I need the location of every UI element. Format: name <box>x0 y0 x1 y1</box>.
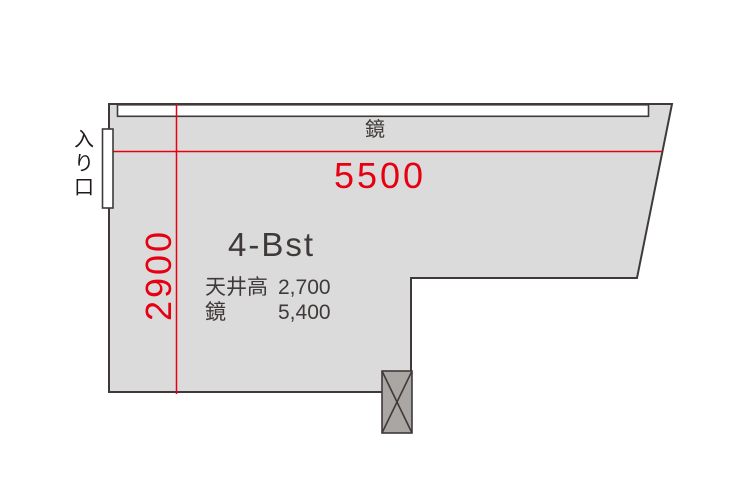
floorplan-canvas: 鏡 5500 2900 4-Bst 天井高 2,700 鏡 5,400 入り口 <box>0 0 750 498</box>
spec-label: 天井高 <box>205 275 278 300</box>
entrance-door <box>103 129 114 208</box>
spec-label: 鏡 <box>205 300 278 325</box>
room-specs: 天井高 2,700 鏡 5,400 <box>205 275 331 325</box>
depth-dimension-value: 2900 <box>141 210 177 340</box>
spec-row-mirror-width: 鏡 5,400 <box>205 300 331 325</box>
spec-value: 5,400 <box>278 300 331 325</box>
room-name-label: 4-Bst <box>228 228 315 262</box>
floorplan-drawing <box>0 0 750 498</box>
spec-row-ceiling-height: 天井高 2,700 <box>205 275 331 300</box>
width-dimension-value: 5500 <box>318 158 442 194</box>
mirror-strip <box>118 105 649 117</box>
entrance-label: 入り口 <box>73 128 95 200</box>
pillar <box>382 371 412 433</box>
spec-value: 2,700 <box>278 275 331 300</box>
mirror-label: 鏡 <box>353 118 397 142</box>
room-outline <box>109 104 672 392</box>
